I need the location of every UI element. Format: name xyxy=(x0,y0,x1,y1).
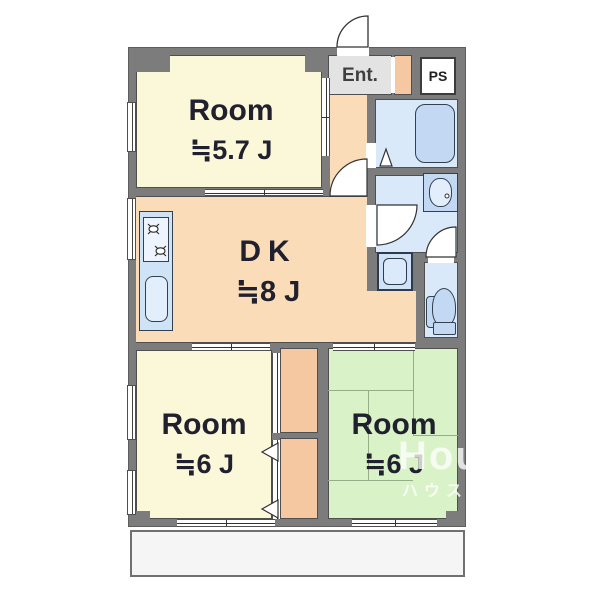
washing-machine-pan-inner xyxy=(383,258,407,285)
room-5-7-label: Room ≒5.7 J xyxy=(189,96,274,164)
sliding-door-dk-room6-left xyxy=(192,343,270,351)
window-kitchen xyxy=(127,198,136,260)
dk-name: DK xyxy=(236,237,301,267)
sliding-door-dk-room6-right xyxy=(333,343,415,351)
watermark-en: HouseStation xyxy=(398,434,600,479)
gas-stove xyxy=(143,217,169,262)
window-room6-left-b xyxy=(127,470,136,515)
balcony-door-room6-right xyxy=(352,519,437,527)
closet-upper xyxy=(280,348,318,433)
window-room57 xyxy=(127,102,136,152)
dk-size: ≒8 J xyxy=(236,278,301,307)
hallway-floor xyxy=(330,95,367,196)
wall-notch-top-left xyxy=(136,55,170,72)
entrance-label: Ent. xyxy=(342,66,378,85)
room-5-7-size: ≒5.7 J xyxy=(189,137,274,164)
balcony xyxy=(130,530,465,577)
wall-notch-ent-left xyxy=(305,55,322,72)
tatami-line xyxy=(328,480,413,481)
sliding-door-room57-dk xyxy=(205,189,323,196)
kitchen-sink xyxy=(145,276,168,322)
dk-top-line xyxy=(136,196,367,197)
balcony-door-room6-left xyxy=(177,519,275,527)
entrance-door-swing xyxy=(337,16,368,47)
window-room6-left-a xyxy=(127,385,136,440)
ps-label: PS xyxy=(429,69,448,83)
shoe-closet xyxy=(394,55,412,95)
washbasin-sink xyxy=(429,178,452,207)
sliding-door-room57-hall xyxy=(321,78,330,156)
wall-notch-room6-bl xyxy=(136,511,150,519)
toilet-tank xyxy=(433,322,456,335)
room-6-left-name: Room xyxy=(162,410,247,440)
ent-closet-gap xyxy=(391,57,395,93)
watermark-jp: ハウステーション xyxy=(402,477,578,501)
room-6-left-size: ≒6 J xyxy=(162,451,247,478)
toilet-door-gap xyxy=(428,253,454,263)
closet-lower-doors xyxy=(272,440,281,519)
bathtub xyxy=(415,104,455,163)
room-6-left-label: Room ≒6 J xyxy=(162,410,247,478)
bathroom-door-gap xyxy=(366,143,376,168)
tatami-line xyxy=(328,390,413,391)
toilet-bowl xyxy=(432,288,456,326)
wall-notch-green-br xyxy=(446,511,458,519)
dk-label: DK ≒8 J xyxy=(236,237,301,307)
washroom-door-gap xyxy=(366,205,376,247)
closet-upper-doors xyxy=(272,353,281,433)
entrance-opening xyxy=(337,47,369,56)
floor-plan: Room ≒5.7 J DK ≒8 J Room ≒6 J Room ≒6 J … xyxy=(0,0,600,600)
room-5-7-name: Room xyxy=(189,96,274,126)
closet-lower xyxy=(280,438,318,519)
